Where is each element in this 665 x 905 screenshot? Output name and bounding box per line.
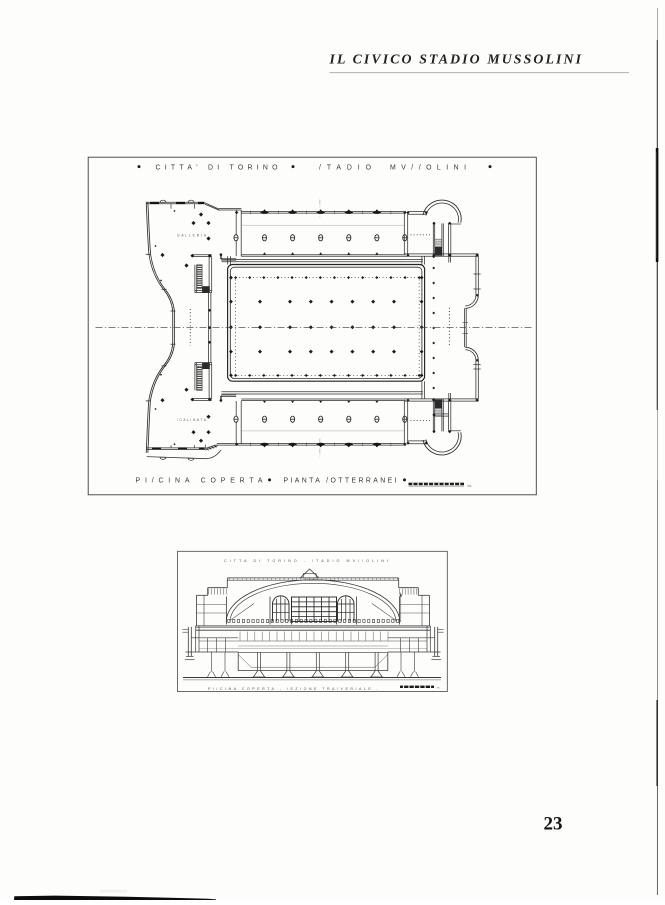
svg-text:mt.: mt. [468,484,473,488]
svg-text:G A L L E R I A: G A L L E R I A [177,234,207,238]
svg-text:23: 23 [544,813,563,834]
svg-text:/ C A L I N A T A: / C A L I N A T A [177,418,207,422]
svg-text:MV//OLINI: MV//OLINI [390,164,466,171]
